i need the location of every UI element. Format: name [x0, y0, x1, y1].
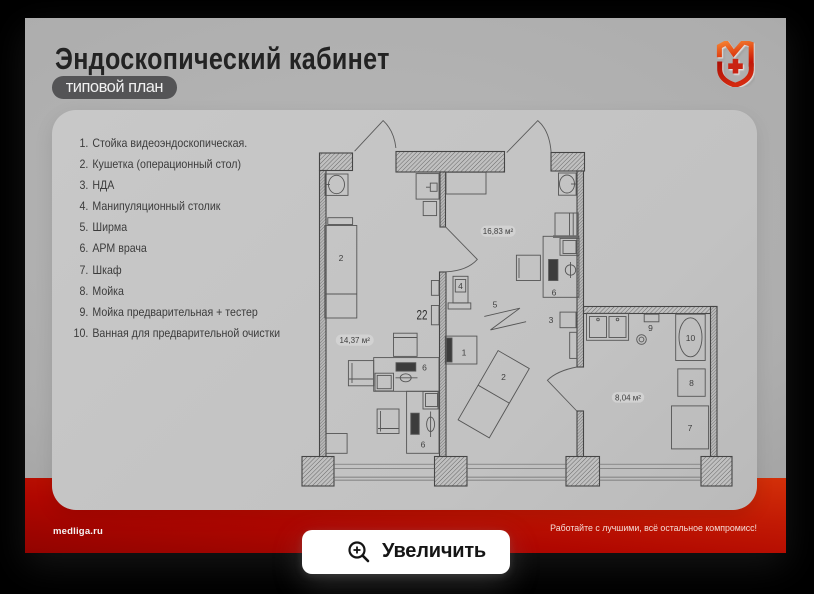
svg-text:2: 2 [339, 253, 344, 263]
svg-text:22: 22 [417, 307, 428, 323]
svg-text:16,83 м²: 16,83 м² [483, 227, 514, 236]
svg-text:3: 3 [549, 315, 554, 325]
svg-text:2: 2 [501, 372, 506, 382]
svg-text:8: 8 [689, 378, 694, 388]
svg-text:1: 1 [462, 348, 467, 358]
svg-text:4: 4 [458, 281, 463, 291]
svg-text:14,37 м²: 14,37 м² [339, 336, 370, 345]
svg-text:9: 9 [648, 323, 653, 333]
svg-text:7: 7 [688, 423, 693, 433]
svg-text:5: 5 [493, 300, 498, 310]
svg-text:6: 6 [422, 363, 427, 373]
svg-text:6: 6 [552, 288, 557, 298]
svg-text:6: 6 [421, 440, 426, 450]
svg-text:10: 10 [686, 333, 696, 343]
svg-text:8,04 м²: 8,04 м² [615, 393, 641, 402]
